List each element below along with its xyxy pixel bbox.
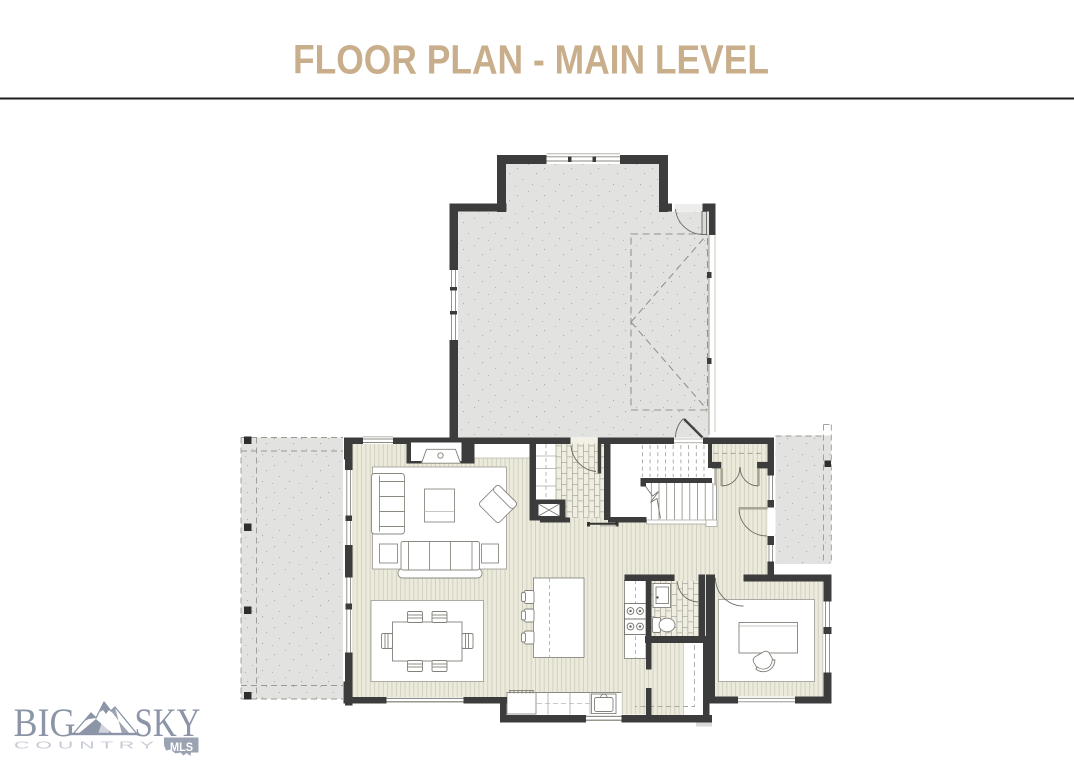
svg-text:BIG: BIG	[14, 700, 76, 745]
svg-text:C O U N T R Y: C O U N T R Y	[14, 741, 155, 752]
svg-text:FLOOR PLAN - MAIN LEVEL: FLOOR PLAN - MAIN LEVEL	[293, 37, 769, 83]
svg-text:MLS: MLS	[170, 742, 193, 754]
